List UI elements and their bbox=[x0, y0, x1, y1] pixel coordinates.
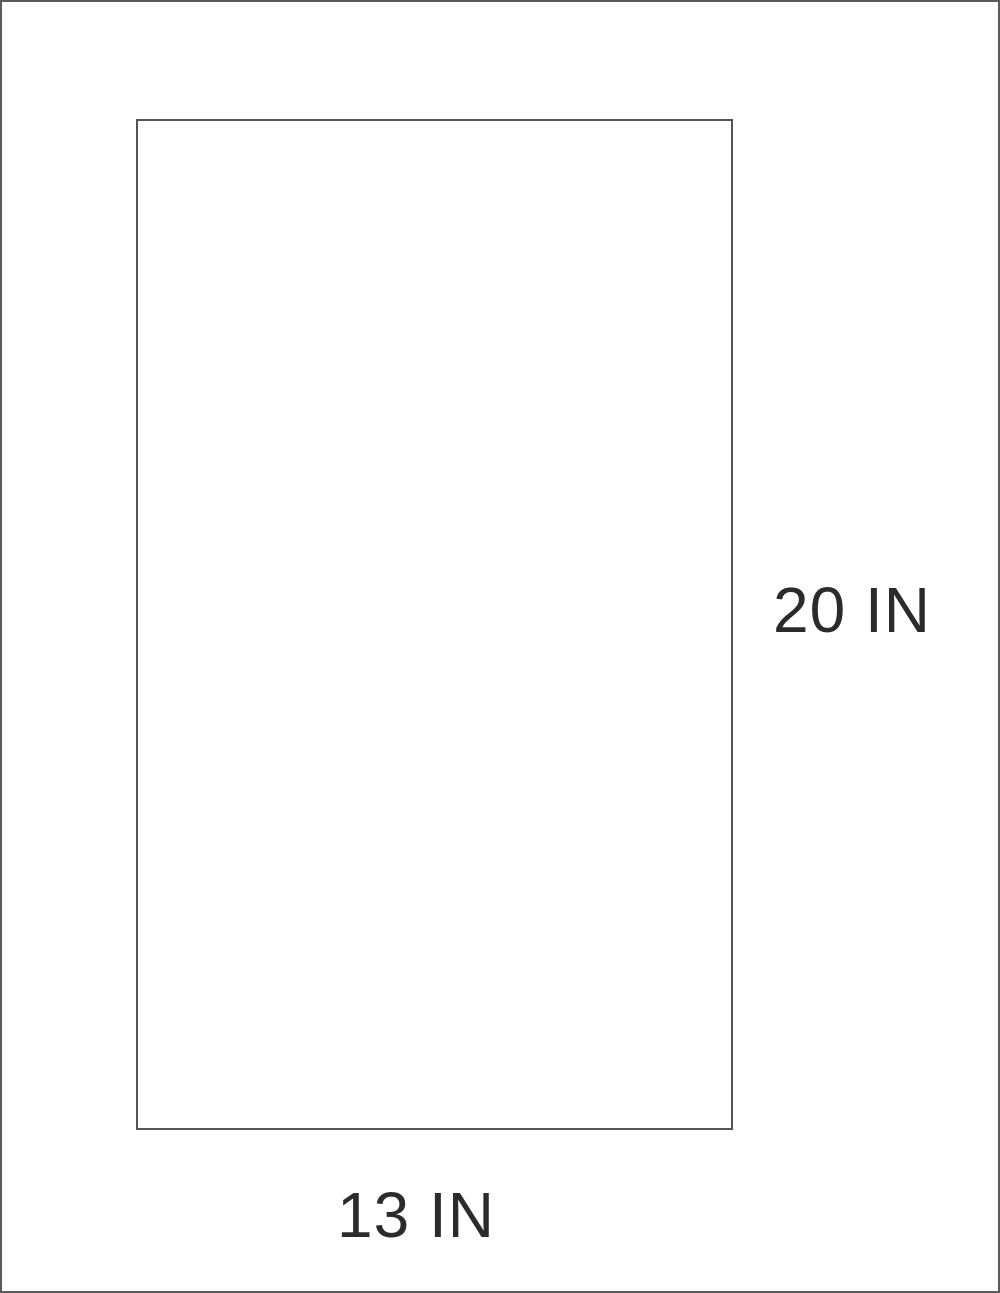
rectangle-shape bbox=[136, 119, 733, 1130]
diagram-canvas: 20 IN 13 IN bbox=[0, 0, 1000, 1293]
height-dimension-label: 20 IN bbox=[773, 573, 931, 647]
width-dimension-label: 13 IN bbox=[337, 1178, 495, 1252]
